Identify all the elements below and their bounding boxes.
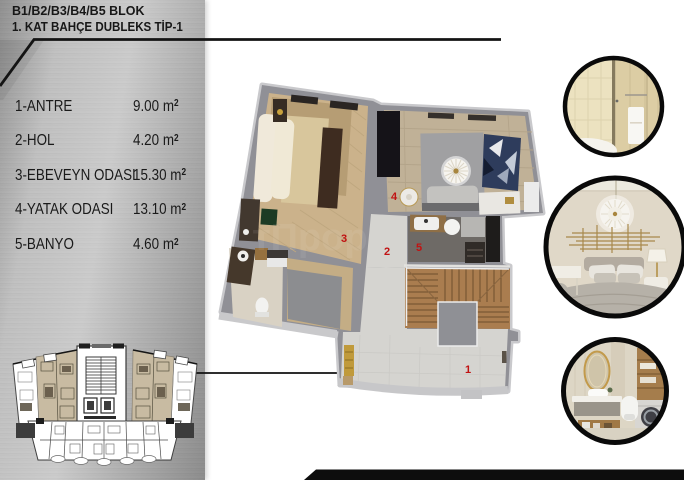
- svg-text:5: 5: [416, 242, 422, 254]
- svg-text:1: 1: [465, 364, 471, 376]
- svg-text:4: 4: [391, 191, 398, 203]
- svg-text:3: 3: [341, 233, 347, 245]
- svg-text:2: 2: [384, 246, 390, 258]
- svg-text:тПрор: тПрор: [252, 217, 368, 259]
